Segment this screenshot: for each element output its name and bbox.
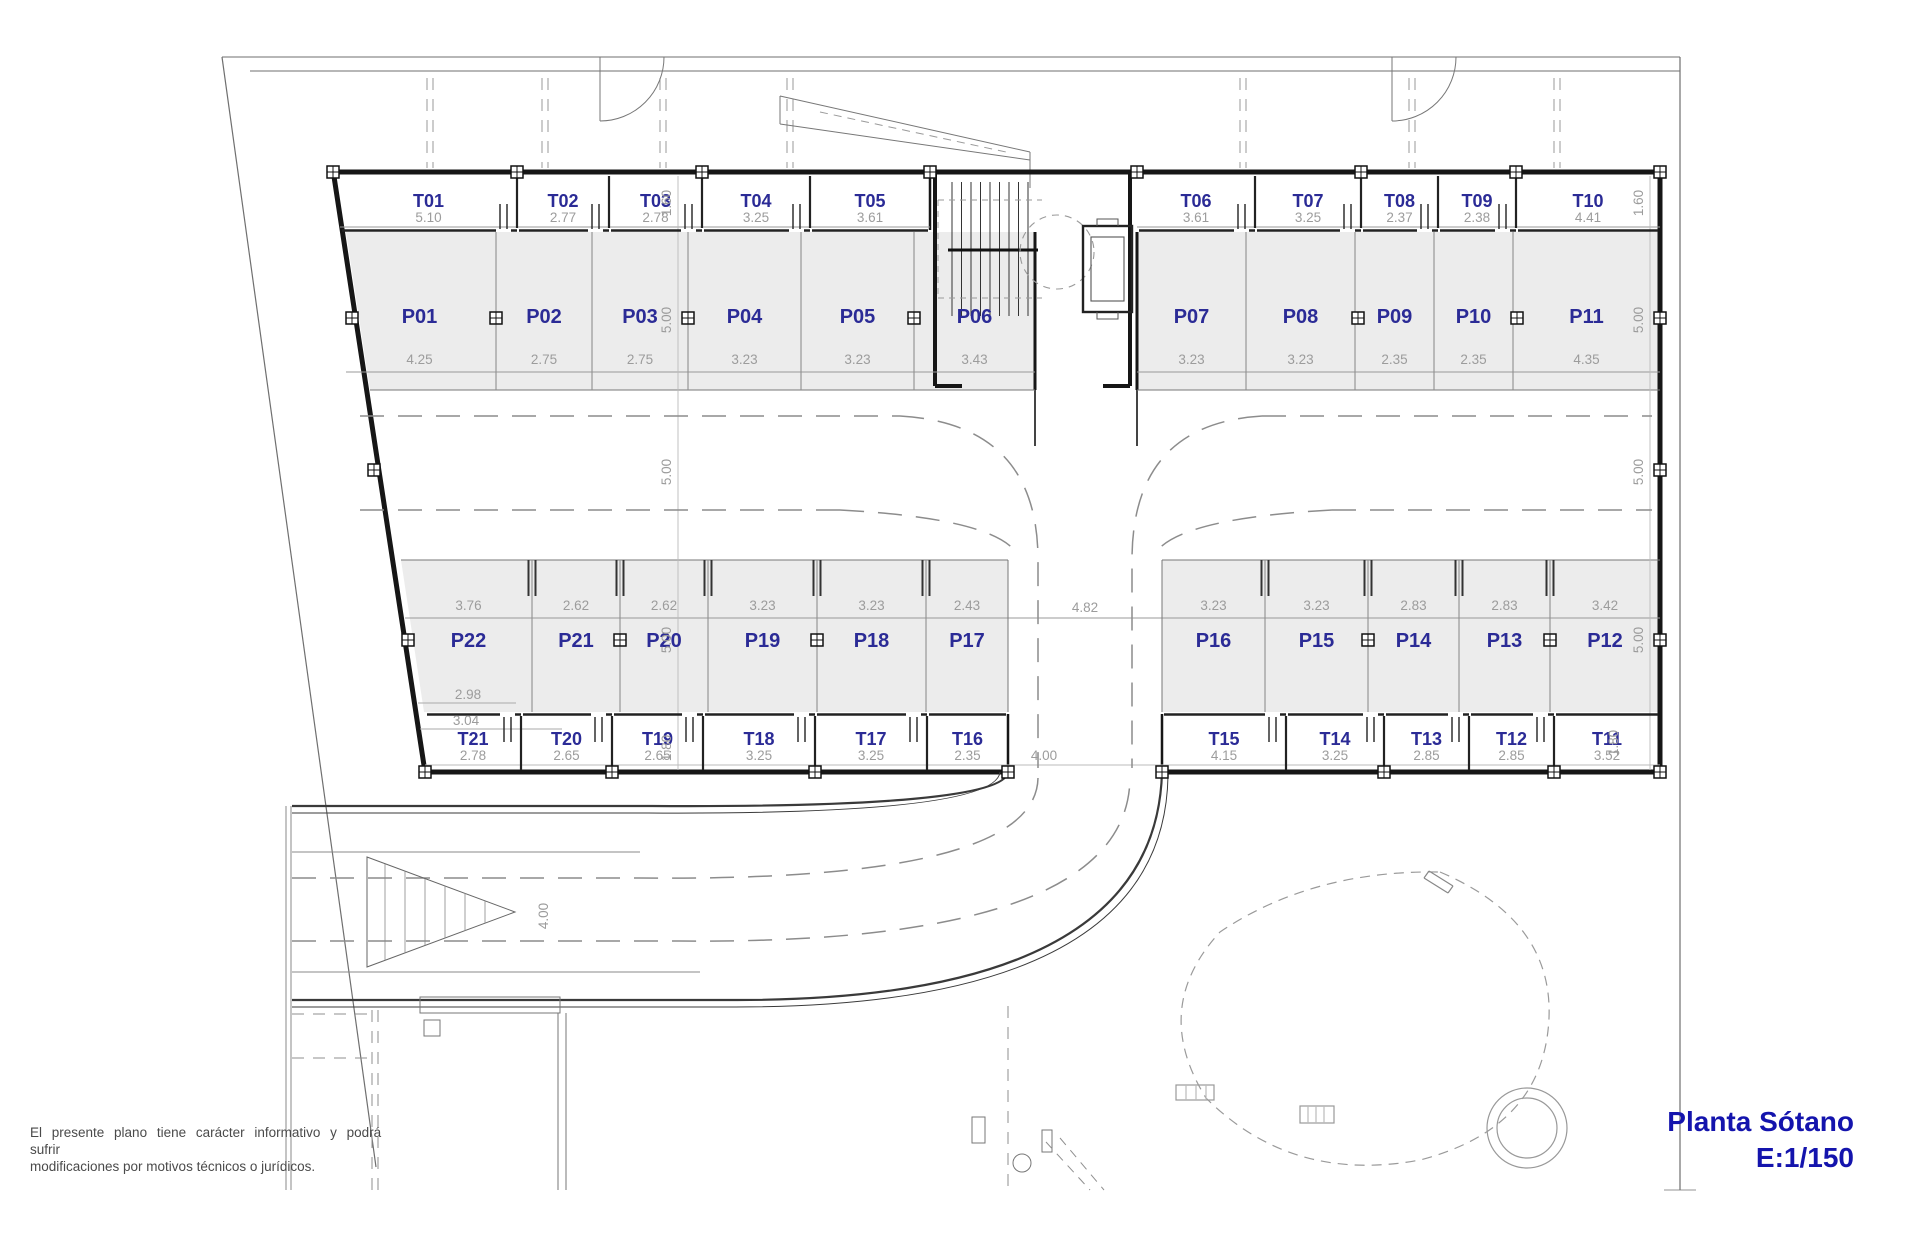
pillar-icon xyxy=(1654,766,1666,778)
pool-ladder-icon xyxy=(1424,871,1453,893)
depth-dim-label: 5.00 xyxy=(1631,627,1646,653)
parking-stall-label-P21: P21 xyxy=(558,630,594,652)
boundary-top-line xyxy=(222,57,1680,71)
storage-unit-label-T08: T08 xyxy=(1384,191,1415,211)
parking-stall-dim-P08: 3.23 xyxy=(1287,352,1313,367)
storage-unit-label-T12: T12 xyxy=(1496,729,1527,749)
parking-stall-label-P22: P22 xyxy=(451,630,487,652)
path-dashes xyxy=(1046,1138,1104,1190)
storage-unit-label-T01: T01 xyxy=(413,191,444,211)
storage-unit-label-T13: T13 xyxy=(1411,729,1442,749)
storage-unit-label-T02: T02 xyxy=(547,191,578,211)
p22-front-dim: 2.98 xyxy=(455,687,481,702)
parking-stall-label-P04: P04 xyxy=(727,306,763,328)
pillar-icon xyxy=(490,312,502,324)
pillar-icon xyxy=(811,634,823,646)
parking-stall-label-P15: P15 xyxy=(1299,630,1335,652)
lane-dashes-straight xyxy=(360,416,1652,510)
storage-unit-label-T14: T14 xyxy=(1319,729,1350,749)
sunbed-icon-2 xyxy=(1300,1106,1334,1123)
parking-stall-label-P02: P02 xyxy=(526,306,562,328)
parking-stall-dim-P15: 3.23 xyxy=(1303,598,1329,613)
parking-stall-dim-P01: 4.25 xyxy=(406,352,432,367)
storage-unit-dim-T08: 2.37 xyxy=(1386,210,1412,225)
parking-stall-dim-P09: 2.35 xyxy=(1381,352,1407,367)
parking-stall-fills xyxy=(346,232,1660,712)
exit-ramp xyxy=(367,857,515,967)
site-details-bottom xyxy=(292,997,1104,1190)
parking-stall-dim-P03: 2.75 xyxy=(627,352,653,367)
parking-stall-dim-P06: 3.43 xyxy=(961,352,987,367)
parking-stall-dim-P22: 3.76 xyxy=(455,598,481,613)
storage-unit-dim-T15: 4.15 xyxy=(1211,748,1237,763)
lane-curve-inner xyxy=(840,510,1332,552)
pillar-icon xyxy=(614,634,626,646)
pillar-icon xyxy=(1378,766,1390,778)
parking-stall-dim-P04: 3.23 xyxy=(731,352,757,367)
disclaimer-note: El presente plano tiene carácter informa… xyxy=(30,1124,398,1175)
pillar-icon xyxy=(402,634,414,646)
pillar-icon xyxy=(696,166,708,178)
bottom-dashed-lines xyxy=(292,1006,1008,1190)
gate-swing-arc-right xyxy=(1392,57,1456,121)
south-driveway-dim: 4.00 xyxy=(1031,748,1057,763)
pillar-icon xyxy=(682,312,694,324)
pillar-icon xyxy=(368,464,380,476)
depth-dim-label: 1.80 xyxy=(1606,730,1621,756)
pillar-icon xyxy=(809,766,821,778)
tree-circle xyxy=(1013,1154,1031,1172)
depth-dim-label: 5.00 xyxy=(659,459,674,485)
parking-stall-label-P18: P18 xyxy=(854,630,890,652)
storage-unit-dim-T09: 2.38 xyxy=(1464,210,1490,225)
pillar-icon xyxy=(924,166,936,178)
sunbed-icon-1 xyxy=(1176,1085,1214,1100)
parking-stall-label-P01: P01 xyxy=(402,306,438,328)
jacuzzi-outer-circle xyxy=(1487,1088,1567,1168)
parking-stall-label-P16: P16 xyxy=(1196,630,1232,652)
disclaimer-line-2: modificaciones por motivos técnicos o ju… xyxy=(30,1158,398,1175)
pool-outline-dashed xyxy=(1181,872,1549,1165)
depth-dim-label: 5.00 xyxy=(659,307,674,333)
parking-stall-dim-P18: 3.23 xyxy=(858,598,884,613)
pillar-icon xyxy=(606,766,618,778)
storage-unit-label-T06: T06 xyxy=(1180,191,1211,211)
pillar-icon xyxy=(1654,166,1666,178)
parking-stall-dim-P20: 2.62 xyxy=(651,598,677,613)
plan-title: Planta Sótano xyxy=(1667,1104,1854,1140)
elevator-car xyxy=(1091,237,1124,301)
parking-stall-label-P19: P19 xyxy=(745,630,781,652)
parking-block-fill xyxy=(346,232,1035,390)
parking-stall-dim-P13: 2.83 xyxy=(1491,598,1517,613)
pillar-icon xyxy=(1654,464,1666,476)
pillar-icon xyxy=(327,166,339,178)
parking-stall-dim-P11: 4.35 xyxy=(1573,352,1599,367)
basement-floor-plan: P014.25P022.75P032.75P043.23P053.23P063.… xyxy=(0,0,1920,1237)
storage-unit-dim-T01: 5.10 xyxy=(415,210,441,225)
storage-unit-dim-T07: 3.25 xyxy=(1295,210,1321,225)
pillar-icon xyxy=(1511,312,1523,324)
parking-stall-dim-P02: 2.75 xyxy=(531,352,557,367)
ramp-band-lines xyxy=(292,852,700,972)
storage-unit-label-T21: T21 xyxy=(457,729,488,749)
jacuzzi-inner-circle xyxy=(1497,1098,1557,1158)
parking-stall-label-P07: P07 xyxy=(1174,306,1210,328)
pillar-icon xyxy=(1156,766,1168,778)
sunbed-bars-2 xyxy=(1308,1106,1324,1123)
storage-unit-label-T04: T04 xyxy=(740,191,771,211)
parking-stall-label-P10: P10 xyxy=(1456,306,1492,328)
storage-unit-label-T17: T17 xyxy=(855,729,886,749)
pillar-icon xyxy=(1510,166,1522,178)
storage-unit-dim-T20: 2.65 xyxy=(553,748,579,763)
pillar-icon xyxy=(346,312,358,324)
parking-stall-dim-P16: 3.23 xyxy=(1200,598,1226,613)
parking-stall-dim-P17: 2.43 xyxy=(954,598,980,613)
pillar-icon xyxy=(419,766,431,778)
site-details-top xyxy=(427,57,1560,188)
pillar-icon xyxy=(1355,166,1367,178)
storage-unit-dim-T04: 3.25 xyxy=(743,210,769,225)
storage-unit-label-T10: T10 xyxy=(1572,191,1603,211)
storage-unit-label-T07: T07 xyxy=(1292,191,1323,211)
pillar-icon xyxy=(1654,312,1666,324)
storage-unit-label-T18: T18 xyxy=(743,729,774,749)
parking-stall-label-P13: P13 xyxy=(1487,630,1523,652)
ramp-width-dim: 4.00 xyxy=(536,903,551,929)
parking-stall-label-P14: P14 xyxy=(1396,630,1432,652)
depth-dim-label: 1.60 xyxy=(1631,190,1646,216)
pillar-icon xyxy=(908,312,920,324)
entry-ramp-dash xyxy=(820,112,1006,152)
small-square-detail xyxy=(424,1020,440,1036)
ramp-hatch xyxy=(385,864,485,960)
sunbed-bars-1 xyxy=(1186,1085,1206,1100)
depth-dim-label: 1.60 xyxy=(659,190,674,216)
parking-stall-dim-P07: 3.23 xyxy=(1178,352,1204,367)
storage-unit-label-T05: T05 xyxy=(854,191,885,211)
t21-back-dim: 3.04 xyxy=(453,713,480,728)
parking-stall-dim-P14: 2.83 xyxy=(1400,598,1426,613)
parking-stall-label-P05: P05 xyxy=(840,306,876,328)
storage-unit-label-T09: T09 xyxy=(1461,191,1492,211)
pool-area xyxy=(1176,871,1567,1168)
road-north-edge xyxy=(292,772,1008,806)
storage-unit-dim-T16: 2.35 xyxy=(954,748,980,763)
pillar-icon xyxy=(1002,766,1014,778)
parking-stall-label-P03: P03 xyxy=(622,306,658,328)
road-center-dashes xyxy=(292,778,1130,941)
driveway-width-dim: 4.82 xyxy=(1072,600,1098,615)
floor-plan-drawing: P014.25P022.75P032.75P043.23P053.23P063.… xyxy=(0,0,1920,1237)
storage-unit-dim-T13: 2.85 xyxy=(1413,748,1439,763)
parking-stall-dim-P19: 3.23 xyxy=(749,598,775,613)
storage-unit-dim-T14: 3.25 xyxy=(1322,748,1348,763)
parking-stall-dim-P05: 3.23 xyxy=(844,352,870,367)
storage-unit-dim-T02: 2.77 xyxy=(550,210,576,225)
parking-stall-label-P12: P12 xyxy=(1587,630,1623,652)
bench-detail-1 xyxy=(972,1117,985,1143)
lobby-column-stubs xyxy=(1035,390,1137,446)
pillar-icon xyxy=(1548,766,1560,778)
storage-unit-dim-T10: 4.41 xyxy=(1575,210,1601,225)
storage-unit-label-T20: T20 xyxy=(551,729,582,749)
pillar-icon xyxy=(1544,634,1556,646)
storage-unit-label-T15: T15 xyxy=(1208,729,1239,749)
storage-unit-dim-T18: 3.25 xyxy=(746,748,772,763)
storage-unit-label-T16: T16 xyxy=(952,729,983,749)
storage-unit-dim-T06: 3.61 xyxy=(1183,210,1209,225)
storage-unit-dim-T21: 2.78 xyxy=(460,748,486,763)
pillar-icon xyxy=(1352,312,1364,324)
title-block: Planta Sótano E:1/150 xyxy=(1667,1104,1854,1176)
storage-unit-dim-T05: 3.61 xyxy=(857,210,883,225)
parking-stall-label-P17: P17 xyxy=(949,630,985,652)
storage-unit-dim-T12: 2.85 xyxy=(1498,748,1524,763)
parking-stall-dim-P12: 3.42 xyxy=(1592,598,1618,613)
parking-stall-dim-P10: 2.35 xyxy=(1460,352,1486,367)
pillar-icon xyxy=(1654,634,1666,646)
depth-dim-label: 5.00 xyxy=(1631,459,1646,485)
elevator-doors xyxy=(1097,219,1118,319)
gate-swing-arc-left xyxy=(600,57,664,121)
parking-stall-dim-P21: 2.62 xyxy=(563,598,589,613)
parking-stall-label-P09: P09 xyxy=(1377,306,1413,328)
disclaimer-line-1: El presente plano tiene carácter informa… xyxy=(30,1124,398,1158)
driveway-edge-lines xyxy=(1008,560,1162,712)
storage-unit-dim-T17: 3.25 xyxy=(858,748,884,763)
depth-dim-label: 5.00 xyxy=(1631,307,1646,333)
parking-stall-label-P11: P11 xyxy=(1569,306,1603,328)
depth-dim-label: 1.80 xyxy=(659,735,674,761)
plan-scale: E:1/150 xyxy=(1667,1140,1854,1176)
pillar-icon xyxy=(1131,166,1143,178)
parking-stall-label-P08: P08 xyxy=(1283,306,1319,328)
depth-dim-label: 5.00 xyxy=(659,627,674,653)
parking-stall-label-P06: P06 xyxy=(957,306,993,328)
ramp-triangle xyxy=(367,857,515,967)
garden-wall-lines xyxy=(558,1013,566,1190)
pillar-icon xyxy=(1362,634,1374,646)
access-road xyxy=(286,772,1168,1190)
bench-detail-2 xyxy=(1042,1130,1052,1152)
pillar-icon xyxy=(511,166,523,178)
